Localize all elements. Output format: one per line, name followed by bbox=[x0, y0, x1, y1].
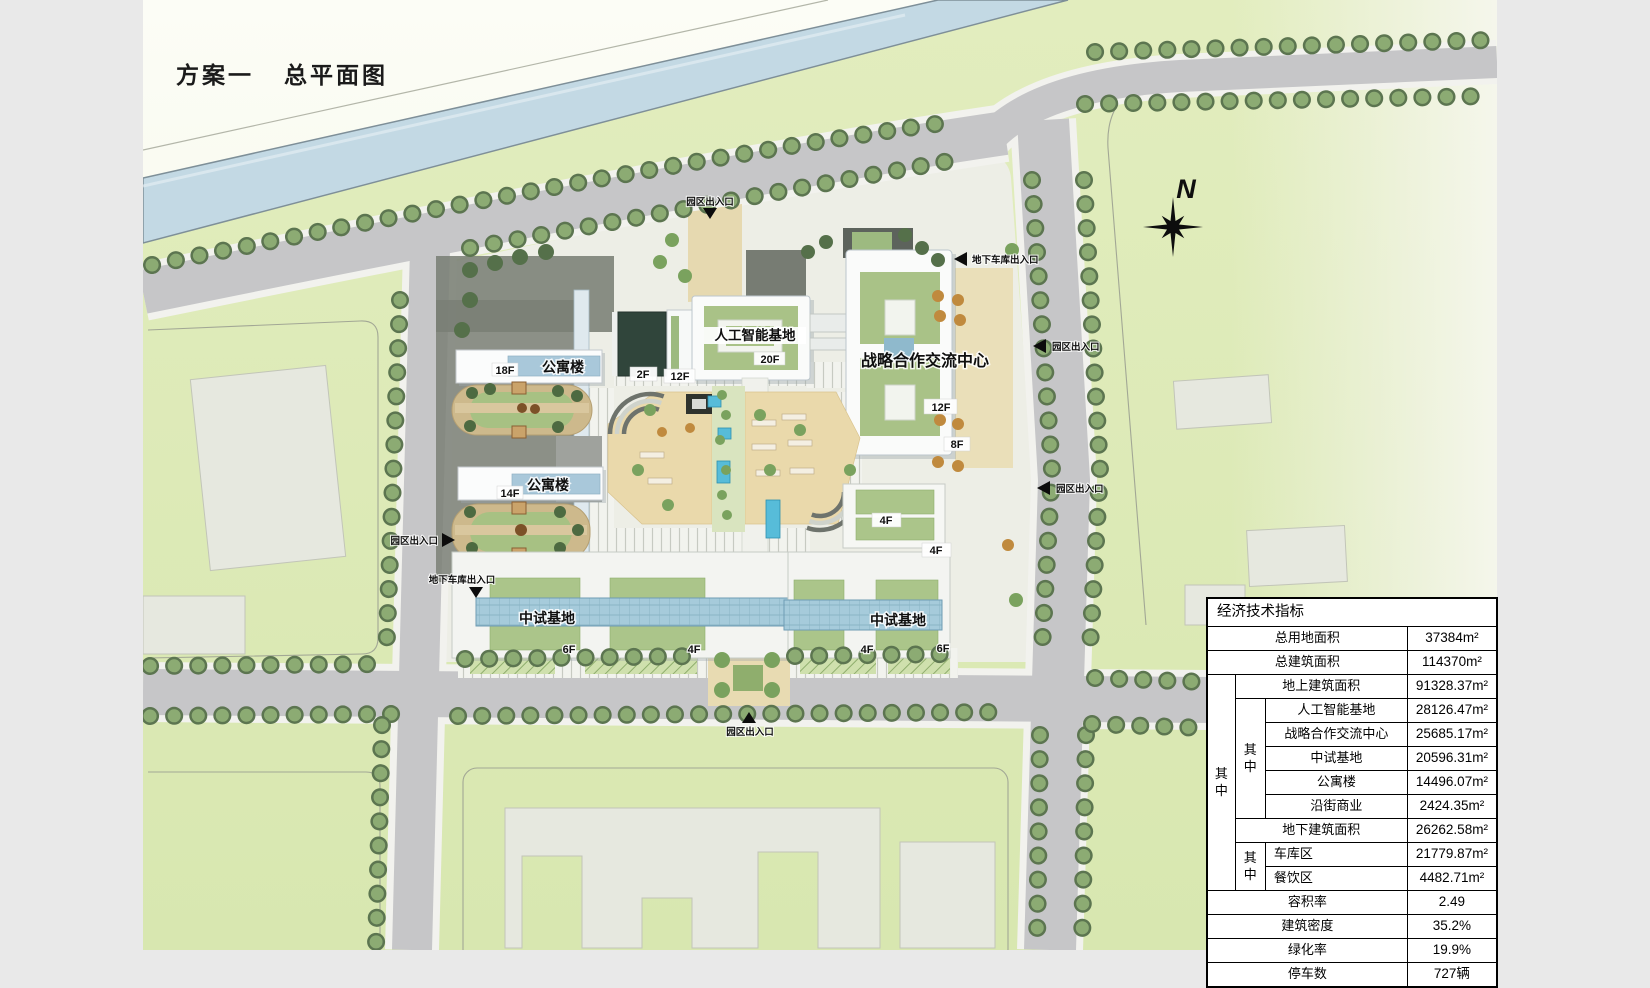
row-value-strategic: 25685.17m² bbox=[1407, 723, 1497, 747]
label-12f-tower: 12F bbox=[671, 371, 690, 383]
row-value-underground: 26262.58m² bbox=[1407, 819, 1497, 843]
entrance-label-east-1: 园区出入口 bbox=[1052, 341, 1100, 353]
label-pilot-east: 中试基地 bbox=[870, 612, 926, 628]
label-apartment-2: 公寓楼 bbox=[527, 477, 569, 493]
building-pilot-east bbox=[784, 552, 950, 658]
row-value-pilot: 20596.31m² bbox=[1407, 747, 1497, 771]
label-2f: 2F bbox=[637, 369, 650, 381]
building-12f-roof bbox=[671, 316, 679, 374]
entrance-label-west: 园区出入口 bbox=[390, 535, 438, 547]
row-value-ai-base: 28126.47m² bbox=[1407, 699, 1497, 723]
row-value-total-built: 114370m² bbox=[1407, 651, 1497, 675]
row-label-pilot: 中试基地 bbox=[1265, 747, 1407, 771]
walk-north-entrance bbox=[688, 204, 742, 302]
label-4f-a: 4F bbox=[880, 515, 893, 527]
row-label-above-ground: 地上建筑面积 bbox=[1235, 675, 1407, 699]
label-4f-b: 4F bbox=[930, 545, 943, 557]
page-title: 方案一 总平面图 bbox=[176, 56, 388, 90]
label-4f-west: 4F bbox=[688, 644, 701, 656]
campus-details bbox=[436, 204, 1023, 706]
table-title: 经济技术指标 bbox=[1207, 598, 1497, 627]
label-18f: 18F bbox=[496, 365, 515, 377]
group-of-which-outer: 其中 bbox=[1207, 675, 1235, 891]
row-value-total-land: 37384m² bbox=[1407, 627, 1497, 651]
row-label-total-built: 总建筑面积 bbox=[1207, 651, 1407, 675]
page: { "page": { "title1": "方案一", "title2": "… bbox=[0, 0, 1650, 950]
page-title-type: 总平面图 bbox=[284, 56, 388, 90]
row-label-underground: 地下建筑面积 bbox=[1235, 819, 1407, 843]
label-8f: 8F bbox=[951, 439, 964, 451]
label-4f-east: 4F bbox=[861, 644, 874, 656]
garage-label-northeast: 地下车库出入口 bbox=[972, 254, 1039, 266]
label-6f-west: 6F bbox=[563, 644, 576, 656]
row-value-apartment: 14496.07m² bbox=[1407, 771, 1497, 795]
row-label-parking: 停车数 bbox=[1207, 963, 1407, 988]
building-2f bbox=[618, 312, 666, 376]
row-value-far: 2.49 bbox=[1407, 891, 1497, 915]
row-label-strategic: 战略合作交流中心 bbox=[1265, 723, 1407, 747]
indicator-table: 经济技术指标 总用地面积 37384m² 总建筑面积 114370m² 其中 地… bbox=[1206, 597, 1498, 988]
row-label-ai-base: 人工智能基地 bbox=[1265, 699, 1407, 723]
row-label-garage: 车库区 bbox=[1265, 843, 1407, 867]
row-label-street-retail: 沿街商业 bbox=[1265, 795, 1407, 819]
row-label-far: 容积率 bbox=[1207, 891, 1407, 915]
row-value-street-retail: 2424.35m² bbox=[1407, 795, 1497, 819]
row-value-parking: 727辆 bbox=[1407, 963, 1497, 988]
row-value-garage: 21779.87m² bbox=[1407, 843, 1497, 867]
row-value-greening: 19.9% bbox=[1407, 939, 1497, 963]
courtyard-garden-2 bbox=[452, 502, 590, 560]
row-label-apartment: 公寓楼 bbox=[1265, 771, 1407, 795]
entrance-label-east-2: 园区出入口 bbox=[1056, 483, 1104, 495]
row-value-above-ground: 91328.37m² bbox=[1407, 675, 1497, 699]
label-apartment-1: 公寓楼 bbox=[542, 359, 584, 375]
row-value-dining: 4482.71m² bbox=[1407, 867, 1497, 891]
row-label-greening: 绿化率 bbox=[1207, 939, 1407, 963]
building-pilot-west bbox=[452, 552, 800, 661]
page-title-scheme: 方案一 bbox=[176, 56, 254, 90]
courtyard-garden-1 bbox=[452, 382, 592, 438]
paving-dark-north bbox=[746, 250, 806, 296]
garage-label-west: 地下车库出入口 bbox=[429, 574, 496, 586]
road-west bbox=[412, 248, 430, 950]
label-6f-east: 6F bbox=[937, 643, 950, 655]
entrance-label-north: 园区出入口 bbox=[686, 196, 734, 208]
label-20f: 20F bbox=[761, 354, 780, 366]
label-pilot-west: 中试基地 bbox=[519, 610, 575, 626]
label-ai-base: 人工智能基地 bbox=[715, 327, 796, 343]
label-strategic-center: 战略合作交流中心 bbox=[861, 351, 989, 370]
group-of-which-below: 其中 bbox=[1235, 843, 1265, 891]
north-arrow-label: N bbox=[1176, 174, 1196, 204]
row-label-dining: 餐饮区 bbox=[1265, 867, 1407, 891]
road-south bbox=[143, 692, 1210, 700]
row-value-density: 35.2% bbox=[1407, 915, 1497, 939]
label-14f: 14F bbox=[501, 488, 520, 500]
group-of-which-above: 其中 bbox=[1235, 699, 1265, 819]
row-label-density: 建筑密度 bbox=[1207, 915, 1407, 939]
label-12f-strategic: 12F bbox=[932, 402, 951, 414]
south-entrance-lawn bbox=[733, 665, 763, 691]
row-label-total-land: 总用地面积 bbox=[1207, 627, 1407, 651]
entrance-label-south: 园区出入口 bbox=[726, 726, 774, 738]
